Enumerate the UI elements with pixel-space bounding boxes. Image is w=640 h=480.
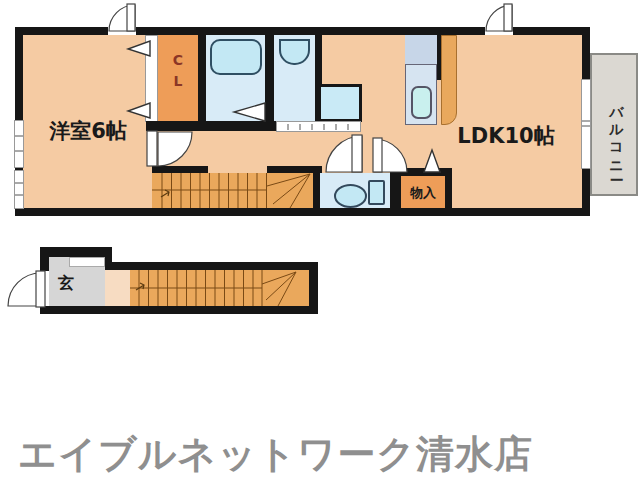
bath-door-marker [234, 103, 265, 121]
ldk-door-leaf [373, 138, 382, 172]
bedroom-door-arc [158, 132, 192, 166]
toilet-door-leaf [352, 135, 362, 172]
bedroom-door-leaf [147, 131, 157, 166]
top-left-door-leaf [127, 4, 135, 31]
upper-stairs-treads [152, 173, 310, 208]
front-door-leaf [36, 271, 45, 307]
closet-fold-marker-top [128, 41, 150, 56]
lower-stairs-arrow [136, 283, 144, 290]
floor-plan-page: バルコニー 物入 玄 洋 [0, 0, 640, 480]
annotation-overlay [0, 0, 640, 480]
lower-stairs-treads [130, 270, 296, 306]
sliding-door-ticks [288, 124, 348, 130]
top-right-door-leaf [504, 4, 512, 31]
closet-fold-marker-bottom [128, 103, 150, 118]
storage-door-marker [424, 150, 440, 172]
window-ticks [15, 121, 590, 195]
